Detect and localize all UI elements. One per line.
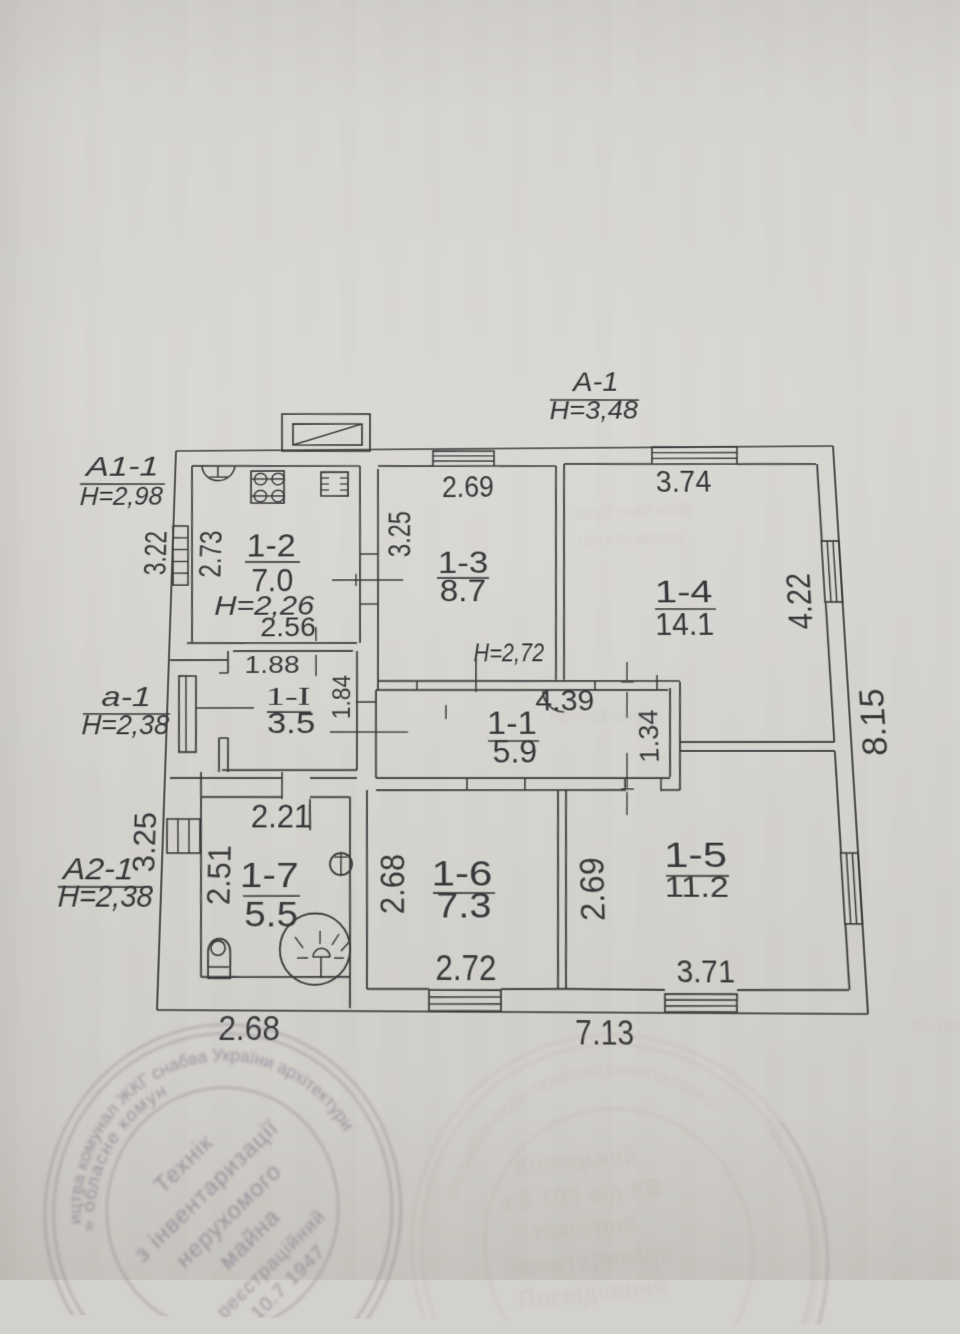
- svg-text:Копицький: Копицький: [514, 1140, 639, 1180]
- svg-text:2.68: 2.68: [374, 854, 412, 914]
- svg-text:Н=3,48: Н=3,48: [549, 396, 639, 426]
- svg-text:3.5: 3.5: [267, 707, 316, 740]
- svg-text:А-1: А-1: [570, 365, 619, 397]
- svg-text:8.15: 8.15: [853, 688, 896, 756]
- svg-text:шцй тгд тїїВ: шцй тгд тїїВ: [576, 501, 692, 522]
- svg-text:11.2: 11.2: [664, 871, 729, 903]
- svg-text:цт нїкороткі: цт нїкороткі: [578, 529, 685, 549]
- svg-text:3.25: 3.25: [382, 511, 417, 557]
- svg-text:14.1: 14.1: [655, 606, 715, 642]
- svg-text:2.51: 2.51: [200, 845, 238, 905]
- svg-text:2.56: 2.56: [260, 612, 316, 643]
- svg-text:1.84: 1.84: [326, 675, 356, 719]
- svg-text:2.73: 2.73: [193, 530, 229, 577]
- svg-text:3.74: 3.74: [655, 466, 712, 499]
- svg-text:1-7: 1-7: [239, 855, 298, 895]
- svg-text:1-4: 1-4: [654, 575, 713, 609]
- svg-text:Н=2,38: Н=2,38: [81, 710, 170, 741]
- svg-text:2.21: 2.21: [251, 798, 312, 834]
- svg-text:1-5: 1-5: [663, 837, 727, 876]
- svg-text:1-2: 1-2: [246, 528, 296, 564]
- svg-text:3.25: 3.25: [125, 812, 163, 872]
- svg-text:1.88: 1.88: [244, 652, 299, 678]
- svg-text:2.72: 2.72: [435, 949, 496, 989]
- svg-text:2.69: 2.69: [573, 857, 613, 921]
- svg-text:named анш: named анш: [549, 706, 648, 726]
- svg-text:Н=2,98: Н=2,98: [79, 482, 163, 512]
- svg-text:технічної: технічної: [530, 1208, 640, 1247]
- svg-text:а-1: а-1: [101, 682, 152, 712]
- svg-text:7.3: 7.3: [436, 886, 491, 927]
- svg-text:7.0: 7.0: [251, 563, 294, 599]
- svg-text:3.71: 3.71: [676, 952, 736, 990]
- svg-text:2.69: 2.69: [442, 471, 494, 504]
- svg-text:5.5: 5.5: [244, 894, 298, 935]
- svg-text:4.22: 4.22: [780, 573, 821, 629]
- svg-text:Н=2,72: Н=2,72: [473, 638, 545, 667]
- svg-text:Н=2,38: Н=2,38: [57, 880, 153, 914]
- svg-text:зїн пав: зїн пав: [910, 1014, 960, 1035]
- svg-text:8.7: 8.7: [440, 574, 487, 608]
- svg-text:2.68: 2.68: [218, 1008, 281, 1048]
- svg-text:А1-1: А1-1: [83, 452, 160, 483]
- svg-text:5.9: 5.9: [492, 735, 537, 770]
- svg-text:3.22: 3.22: [138, 531, 174, 575]
